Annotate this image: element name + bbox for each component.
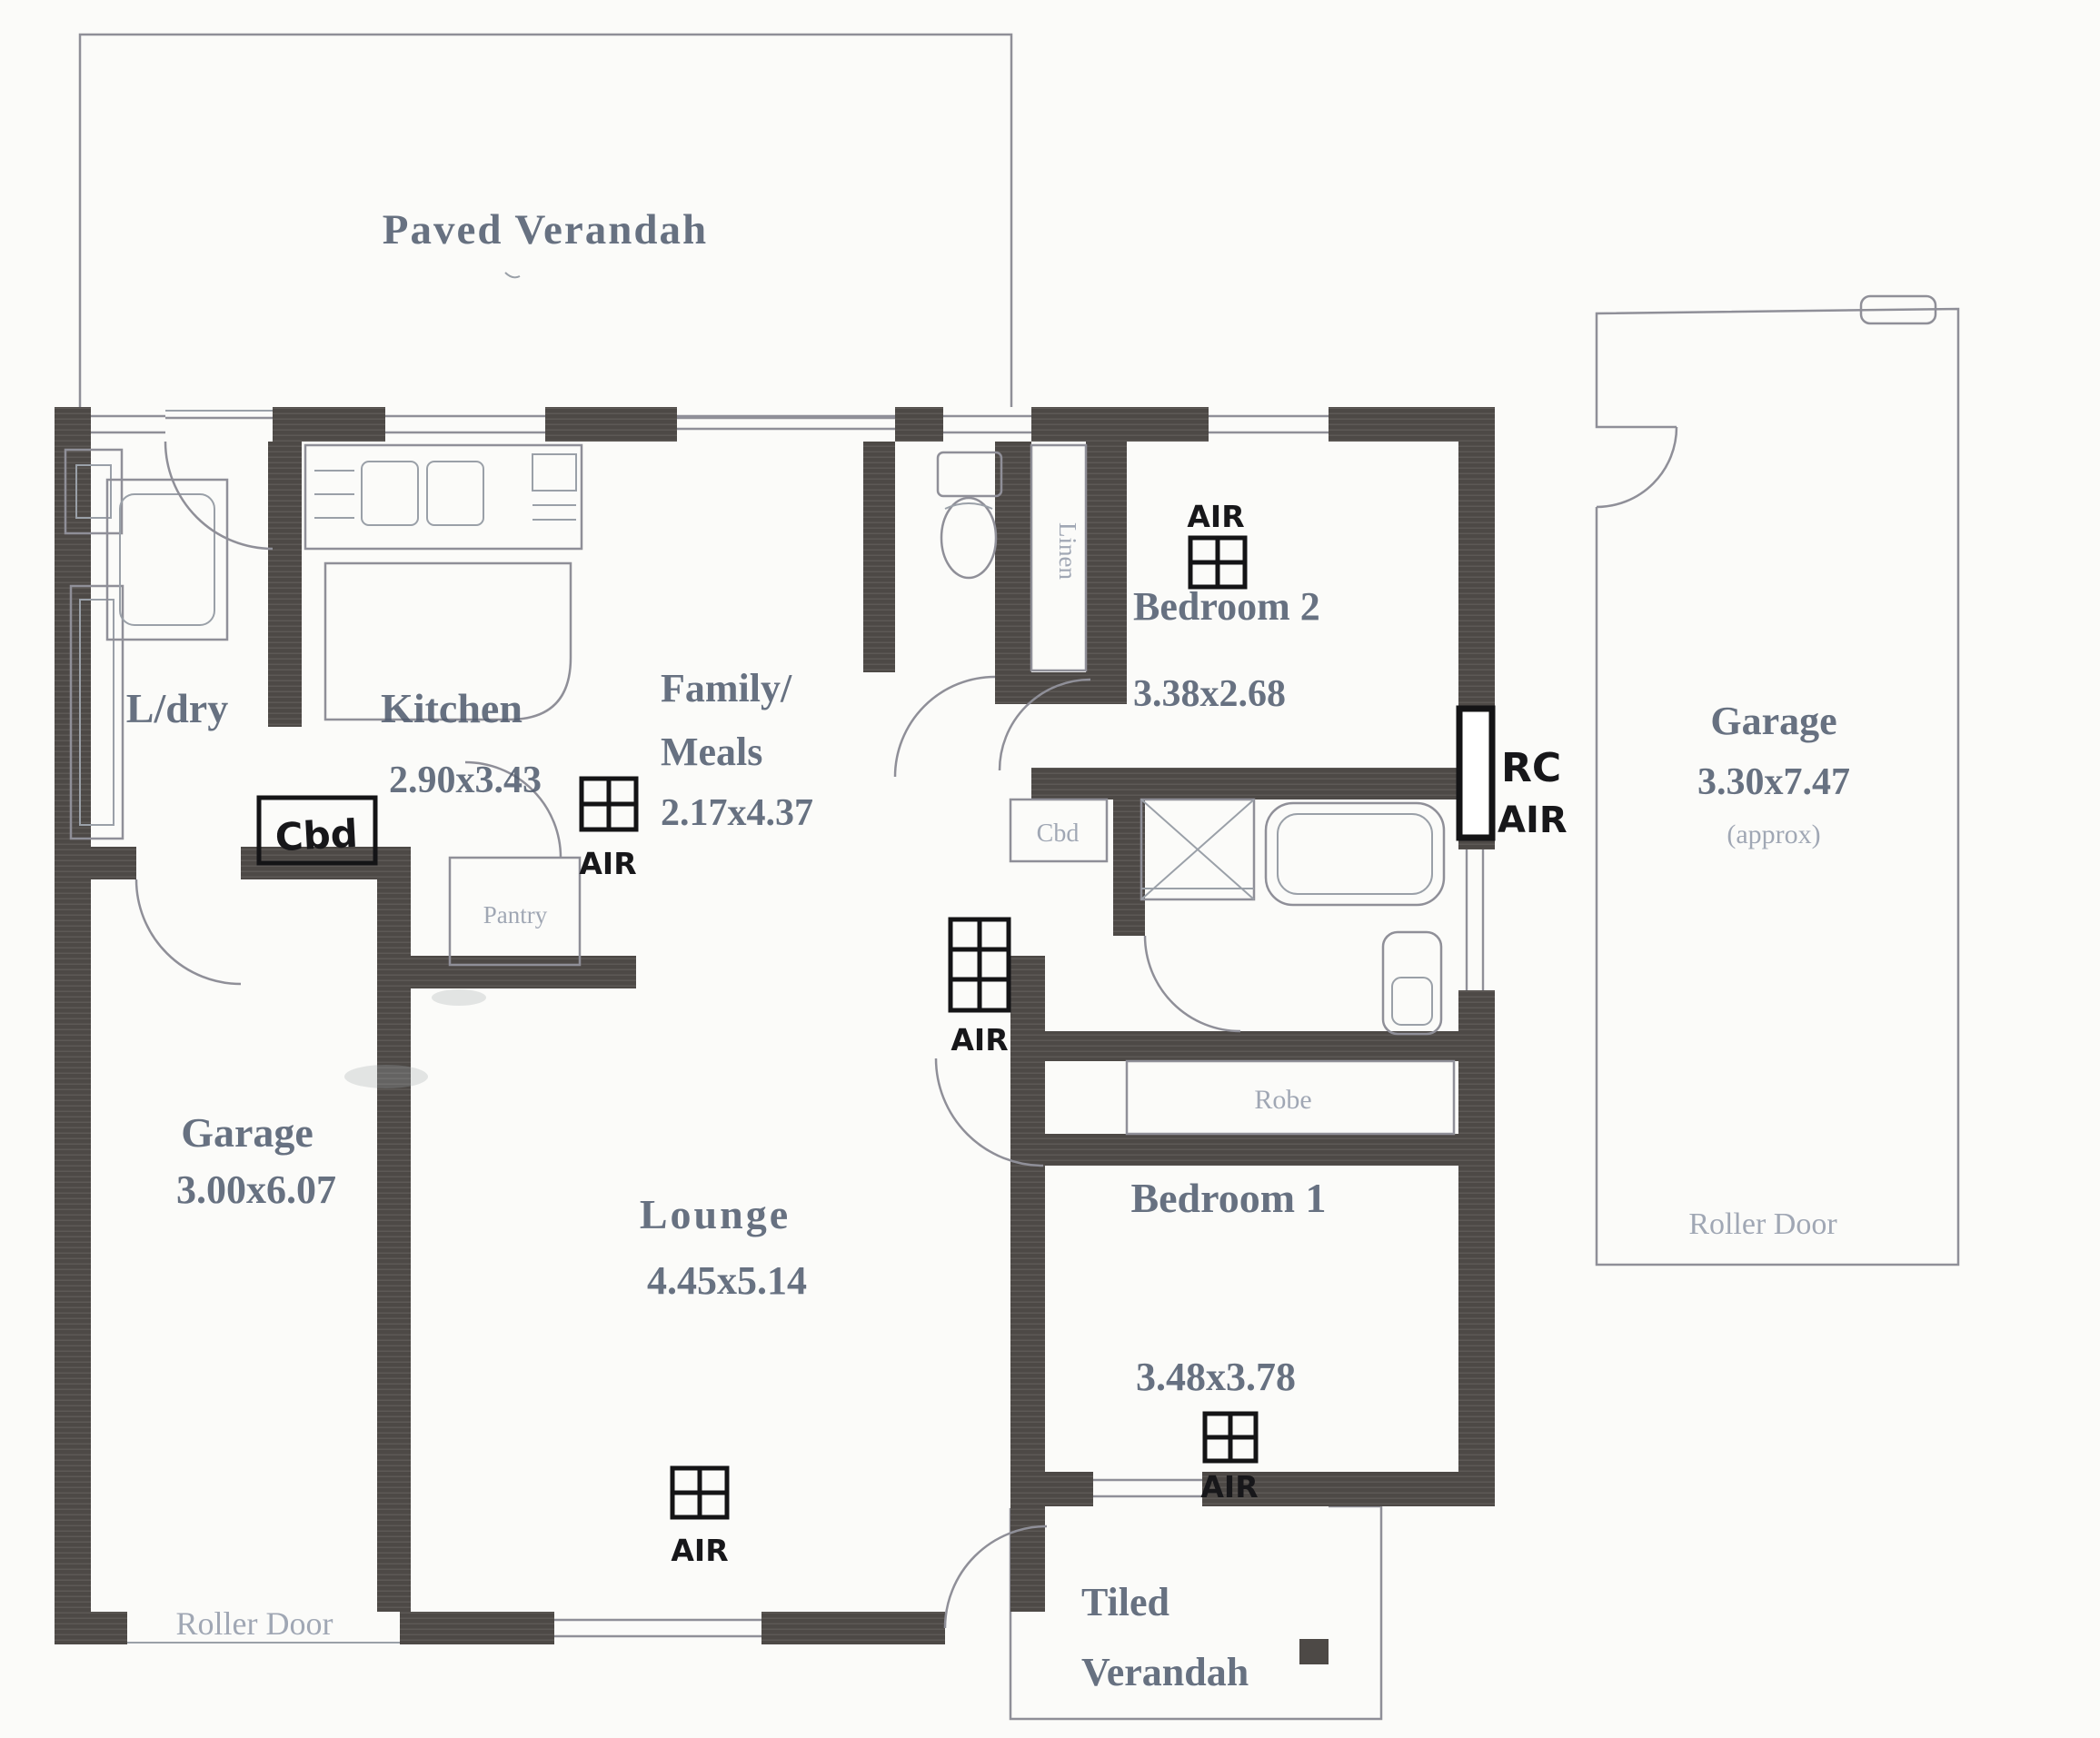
air-marker-bedroom2: AIR (1187, 499, 1245, 587)
tiled-verandah: Tiled Verandah (1010, 1506, 1381, 1719)
window (1467, 849, 1483, 990)
wall-segment (1086, 442, 1127, 677)
scan-smudge (432, 989, 486, 1006)
linen-label: Linen (1054, 522, 1081, 580)
wall-segment (761, 1612, 945, 1644)
wall-segment (1031, 407, 1209, 442)
garage-right-dims: 3.30x7.47 (1697, 761, 1850, 803)
wall-segment (1043, 1472, 1093, 1506)
bathtub (1266, 803, 1444, 905)
robe-label: Robe (1254, 1085, 1311, 1115)
rc-air-unit-box (1459, 709, 1492, 838)
air-marker-kitchen: AIR (579, 779, 636, 881)
wall-segment (1031, 768, 1458, 799)
garage-right: Garage 3.30x7.47 (approx) Roller Door (1597, 296, 1958, 1265)
air-label: AIR (1187, 499, 1244, 534)
wall-segment (411, 956, 636, 988)
air-marker-lounge: AIR (671, 1468, 728, 1568)
verandah-post (1299, 1639, 1329, 1664)
wall-segment (1458, 990, 1495, 1506)
wall-segment (895, 407, 943, 442)
bedroom1-dims: 3.48x3.78 (1136, 1355, 1296, 1399)
window (943, 407, 1031, 442)
wall-segment (377, 847, 411, 1612)
scan-smudge (344, 1065, 428, 1088)
wall-segment (863, 442, 895, 672)
window-grid-icon (582, 779, 636, 829)
garage-left-dims: 3.00x6.07 (176, 1167, 336, 1212)
paved-verandah-label: Paved Verandah (383, 206, 708, 253)
kitchen-label: Kitchen (381, 685, 523, 731)
garage-left-label: Garage (181, 1109, 314, 1156)
air-label: AIR (671, 1533, 728, 1568)
tiled-verandah-label-1: Tiled (1081, 1580, 1169, 1624)
wall-segment (55, 407, 91, 1644)
window (385, 407, 545, 442)
bedroom2-label: Bedroom 2 (1133, 584, 1320, 629)
cbd-bath-label: Cbd (1037, 819, 1080, 848)
toilet-bowl (941, 498, 996, 578)
window (1093, 1480, 1202, 1496)
garage-right-label: Garage (1710, 699, 1836, 743)
window-grid-icon (1205, 1414, 1256, 1461)
kitchen-dims: 2.90x3.43 (389, 760, 542, 801)
kitchen-hob (532, 454, 576, 491)
bathtub-inner (1278, 814, 1432, 894)
pantry-label: Pantry (483, 901, 548, 929)
tiled-verandah-label-2: Verandah (1081, 1650, 1249, 1694)
floor-plan: Paved Verandah Garage 3.30x7.47 (approx)… (0, 0, 2100, 1738)
window (1209, 407, 1329, 442)
air-label: AIR (579, 846, 636, 881)
door-arc-garage-left (136, 879, 241, 984)
floor-plan-page: Paved Verandah Garage 3.30x7.47 (approx)… (0, 0, 2100, 1738)
family-dims: 2.17x4.37 (661, 792, 813, 834)
toilet-cistern (938, 452, 1001, 496)
laundry-tub (107, 480, 227, 640)
window (91, 407, 165, 442)
wall-segment (55, 847, 136, 879)
wall-segment (1010, 1031, 1458, 1061)
wall-segment (400, 1612, 554, 1644)
wall-segment (273, 407, 385, 442)
family-label-1: Family/ (661, 666, 792, 710)
shower (1141, 799, 1254, 899)
garage-left-roller-door-label: Roller Door (176, 1605, 333, 1642)
door-arc-bathroom (1145, 936, 1240, 1031)
rc-air-label: AIR (1498, 799, 1568, 841)
window (554, 1620, 761, 1636)
family-label-2: Meals (661, 730, 762, 774)
kitchen-sink-bowl (362, 462, 418, 525)
garage-right-approx: (approx) (1727, 819, 1820, 849)
cbd-hall-label: Cbd (274, 811, 359, 860)
air-label: AIR (950, 1022, 1008, 1058)
rc-label: RC (1501, 745, 1561, 791)
vanity-basin (1392, 978, 1432, 1025)
wall-segment (55, 1612, 127, 1644)
window-grid-icon (950, 919, 1009, 1010)
toilet-seat-line (945, 503, 992, 509)
wall-segment (545, 407, 677, 442)
wall-segment (1043, 1134, 1458, 1166)
window-grid-icon (1190, 538, 1245, 587)
air-label: AIR (1200, 1469, 1258, 1505)
door-arc-wc (895, 677, 995, 777)
lounge-label: Lounge (640, 1191, 791, 1237)
scan-squiggle (505, 273, 520, 277)
ldry-label: L/dry (126, 685, 228, 731)
garage-right-door-arc (1597, 427, 1677, 507)
wall-segment (268, 442, 302, 727)
kitchen-sink-bowl (427, 462, 483, 525)
window-grid-icon (672, 1468, 727, 1517)
wall-segment (995, 672, 1127, 704)
bedroom1-label: Bedroom 1 (1130, 1175, 1326, 1221)
lounge-dims: 4.45x5.14 (647, 1258, 807, 1303)
laundry-tub-bowl (120, 494, 214, 625)
paved-verandah: Paved Verandah (80, 35, 1011, 418)
air-marker-bedroom1: AIR (1200, 1414, 1258, 1505)
bedroom2-dims: 3.38x2.68 (1133, 673, 1286, 715)
air-marker-hall: AIR (950, 919, 1009, 1058)
rc-air-unit: RC AIR (1459, 709, 1568, 841)
garage-right-roller-door-label: Roller Door (1688, 1207, 1837, 1241)
